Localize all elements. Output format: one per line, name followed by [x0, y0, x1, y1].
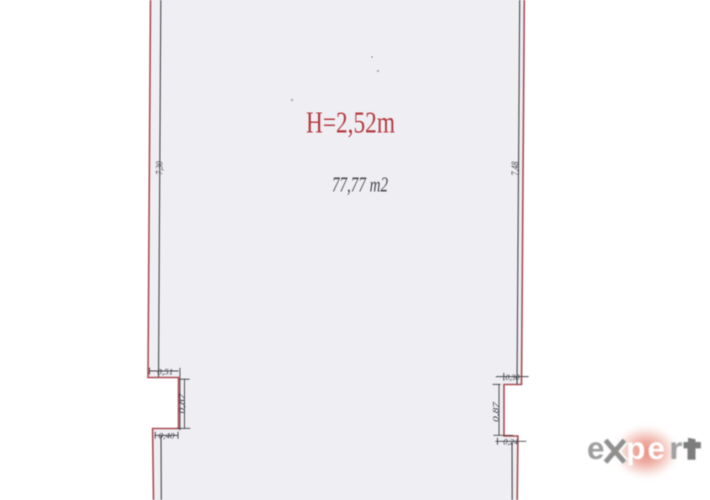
svg-text:0,87: 0,87	[491, 401, 501, 422]
svg-text:0,40: 0,40	[159, 431, 176, 441]
svg-text:e: e	[648, 430, 666, 466]
svg-text:7,30: 7,30	[154, 161, 164, 175]
svg-text:0,24: 0,24	[503, 436, 519, 446]
svg-text:H=2,52m: H=2,52m	[306, 105, 395, 140]
svg-text:e: e	[587, 430, 605, 466]
svg-text:77,77 m2: 77,77 m2	[332, 173, 388, 197]
svg-text:7,48: 7,48	[510, 161, 520, 175]
svg-text:r: r	[669, 430, 683, 466]
svg-text:0,87: 0,87	[176, 392, 186, 413]
svg-text:0,30: 0,30	[506, 372, 521, 382]
svg-text:p: p	[626, 430, 646, 466]
svg-text:0,51: 0,51	[157, 366, 173, 376]
